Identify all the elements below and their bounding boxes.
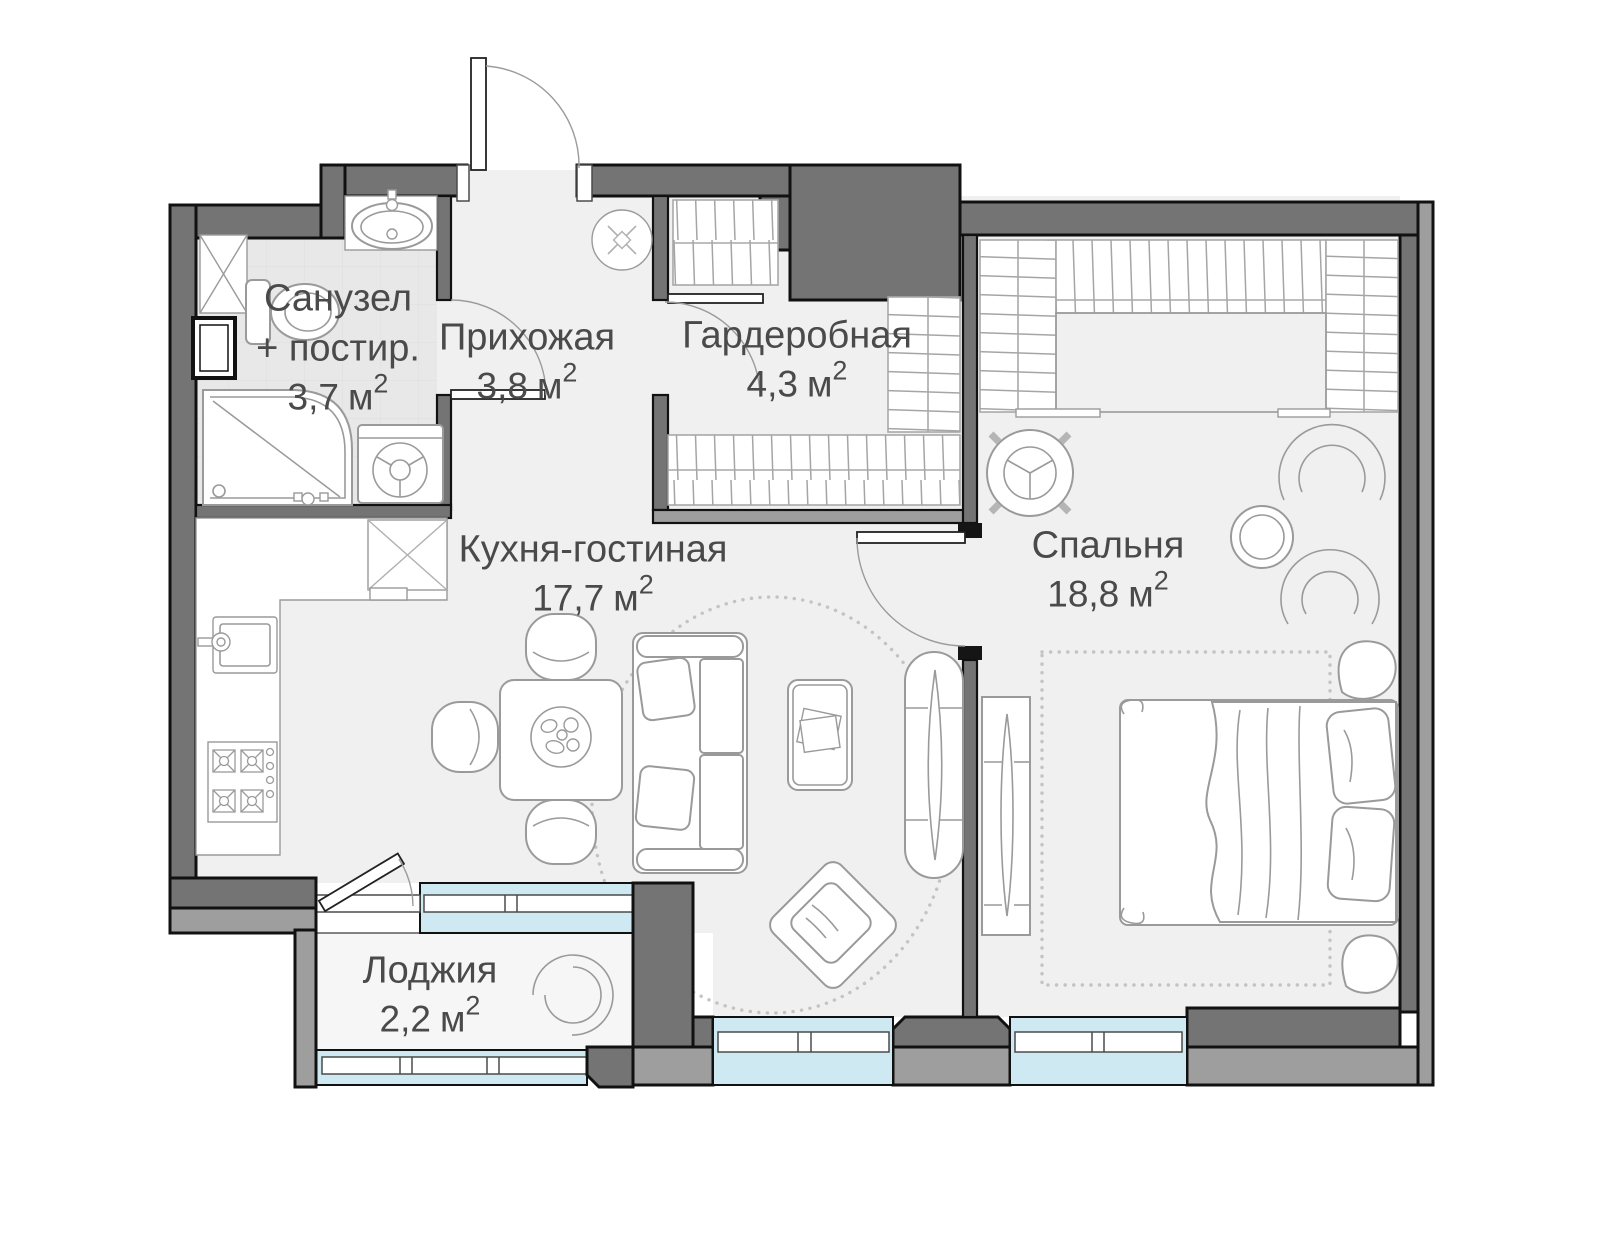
vent-icon: [592, 210, 652, 270]
dining-table-icon: [500, 680, 622, 800]
pouf-icon: [1339, 641, 1396, 699]
room-label-wardrobe-room: Гардеробная 4,3м2: [682, 311, 912, 410]
room-area: 3,8м2: [439, 363, 615, 412]
stove-icon: [208, 742, 277, 822]
tv-console-bedroom: [982, 697, 1030, 935]
room-label-bathroom: Санузел + постир. 3,7м2: [256, 273, 420, 422]
room-label-hallway: Прихожая 3,8м2: [439, 313, 615, 412]
side-table-icon: [987, 430, 1073, 516]
bath-sink-icon: [345, 190, 437, 250]
coffee-table-icon: [788, 680, 852, 790]
pouf-icon: [1342, 935, 1397, 993]
room-area: 3,7м2: [256, 374, 420, 423]
tv-console-living: [905, 652, 963, 878]
room-area: 17,7м2: [459, 575, 728, 624]
room-area: 2,2м2: [363, 996, 498, 1045]
floor-plan-drawing: [0, 0, 1600, 1251]
bed-icon: [1120, 700, 1398, 925]
fridge-icon: [368, 520, 447, 600]
room-label-bedroom: Спальня 18,8м2: [1032, 521, 1185, 620]
room-label-loggia: Лоджия 2,2м2: [363, 946, 498, 1045]
floor-plan: Санузел + постир. 3,7м2 Прихожая 3,8м2 Г…: [0, 0, 1600, 1251]
duct-shaft-icon: [200, 235, 247, 313]
wardrobe-hatch-bottom: [668, 435, 960, 505]
room-area: 4,3м2: [682, 361, 912, 410]
wardrobe-hatch-upper: [673, 200, 778, 285]
loggia-top-window-frame: [424, 895, 633, 912]
sofa-icon: [633, 633, 747, 873]
room-label-kitchen-living: Кухня-гостиная 17,7м2: [459, 525, 728, 624]
room-area: 18,8м2: [1032, 571, 1185, 620]
laundry-shaft-icon: [193, 318, 235, 378]
washing-machine-icon: [358, 425, 443, 503]
loggia-bottom-window-frame: [322, 1057, 587, 1074]
